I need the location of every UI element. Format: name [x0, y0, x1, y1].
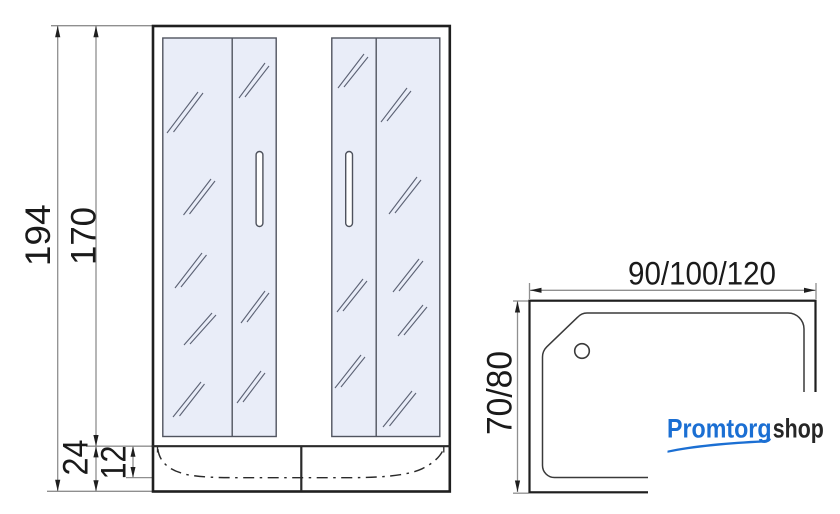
svg-text:170: 170	[65, 207, 104, 265]
svg-text:70/80: 70/80	[480, 351, 519, 435]
svg-text:90/100/120: 90/100/120	[628, 256, 776, 292]
svg-text:24: 24	[56, 440, 95, 476]
svg-text:shop: shop	[773, 414, 824, 444]
svg-text:12: 12	[94, 446, 133, 480]
svg-text:Promtorg: Promtorg	[667, 414, 772, 444]
svg-text:194: 194	[19, 204, 58, 266]
